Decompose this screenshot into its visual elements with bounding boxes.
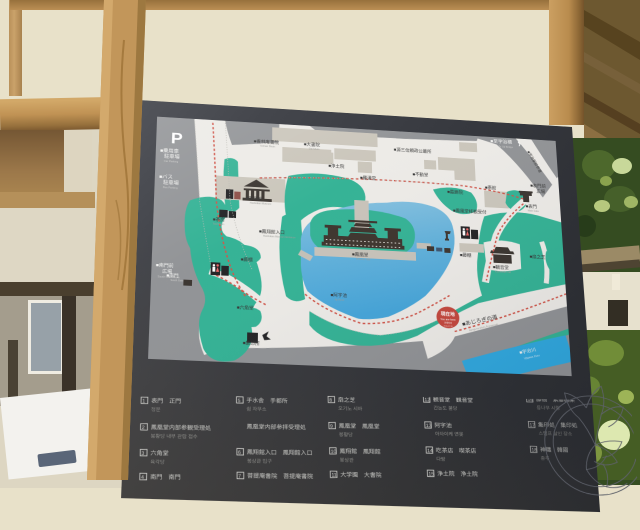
svg-text:10: 10 bbox=[331, 449, 337, 455]
svg-text:다방: 다방 bbox=[436, 455, 446, 463]
svg-text:봉상관 입구: 봉상관 입구 bbox=[247, 457, 272, 465]
svg-text:봉황당: 봉황당 bbox=[339, 431, 353, 438]
svg-text:大学園 大書院: 大学園 大書院 bbox=[340, 470, 383, 479]
svg-text:鳳凰堂 鳳凰堂: 鳳凰堂 鳳凰堂 bbox=[339, 421, 380, 430]
svg-text:鳳凰堂内部参観受理処: 鳳凰堂内部参観受理処 bbox=[151, 423, 212, 433]
svg-text:11: 11 bbox=[331, 472, 337, 478]
svg-text:5: 5 bbox=[238, 398, 241, 403]
svg-text:봉상관: 봉상관 bbox=[340, 456, 354, 463]
svg-text:13: 13 bbox=[426, 423, 432, 428]
svg-text:6: 6 bbox=[238, 449, 241, 455]
svg-text:오기노 시바: 오기노 시바 bbox=[338, 405, 362, 413]
svg-text:봉황당 내부 관람 접수: 봉황당 내부 관람 접수 bbox=[151, 432, 198, 440]
svg-text:観音堂 観音堂: 観音堂 観音堂 bbox=[433, 395, 473, 404]
svg-text:14: 14 bbox=[427, 448, 433, 453]
svg-text:浄土院 浄土院: 浄土院 浄土院 bbox=[437, 469, 479, 478]
svg-text:吃茶店 喫茶店: 吃茶店 喫茶店 bbox=[436, 446, 477, 455]
svg-text:鳳翔館 鳳翔館: 鳳翔館 鳳翔館 bbox=[339, 447, 380, 456]
svg-text:菩提庵書院 菩提庵書院: 菩提庵書院 菩提庵書院 bbox=[247, 471, 314, 481]
svg-text:阿字池: 阿字池 bbox=[434, 421, 453, 430]
svg-text:15: 15 bbox=[428, 471, 434, 477]
svg-text:12: 12 bbox=[424, 397, 430, 402]
svg-text:扇之芝: 扇之芝 bbox=[338, 395, 357, 404]
svg-text:表門 正門: 表門 正門 bbox=[151, 396, 181, 405]
svg-text:鳳翔館入口 鳳翔館入口: 鳳翔館入口 鳳翔館入口 bbox=[247, 447, 313, 457]
svg-text:간논도 불당: 간논도 불당 bbox=[433, 404, 457, 412]
svg-text:7: 7 bbox=[238, 473, 242, 479]
svg-text:아자이케 연못: 아자이케 연못 bbox=[435, 430, 464, 438]
svg-text:쉼 자무소: 쉼 자무소 bbox=[246, 405, 266, 413]
svg-text:8: 8 bbox=[329, 397, 333, 402]
svg-text:9: 9 bbox=[330, 423, 334, 428]
svg-text:鳳凰堂内部参拝受理処: 鳳凰堂内部参拝受理処 bbox=[247, 422, 307, 432]
svg-text:手水舎 手都所: 手水舎 手都所 bbox=[246, 396, 287, 405]
